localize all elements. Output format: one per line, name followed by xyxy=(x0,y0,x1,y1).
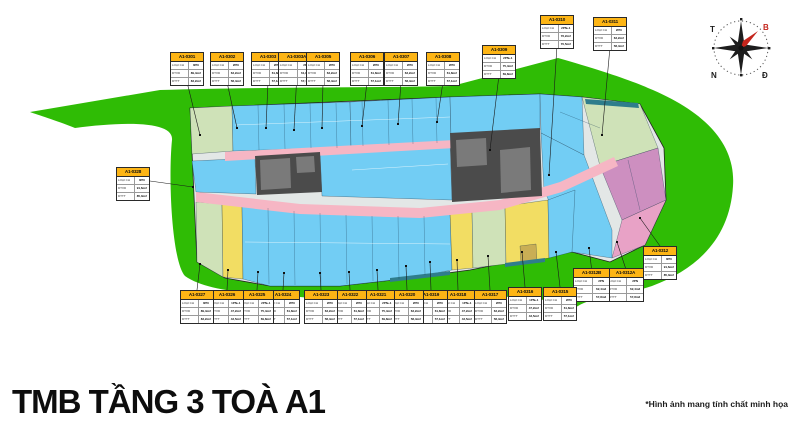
callout-endpoint xyxy=(487,255,489,257)
unit-block xyxy=(192,158,256,194)
callout-endpoint xyxy=(456,259,458,261)
unit-block xyxy=(548,190,575,258)
callout-endpoint xyxy=(192,186,194,188)
disclaimer-note: *Hình ảnh mang tính chất minh họa xyxy=(645,399,788,409)
unit-block xyxy=(472,206,506,268)
callout-endpoint xyxy=(199,263,201,265)
unit-block xyxy=(222,204,243,279)
site-plan xyxy=(0,0,800,422)
callout-endpoint xyxy=(639,217,641,219)
callout-endpoint xyxy=(199,134,201,136)
page-title: TMB TẦNG 3 TOÀ A1 xyxy=(12,383,325,421)
compass-west-label: T xyxy=(710,25,715,34)
building xyxy=(190,94,666,286)
callout-endpoint xyxy=(361,125,363,127)
callout-endpoint xyxy=(489,149,491,151)
core-room xyxy=(456,138,487,167)
callout-endpoint xyxy=(555,251,557,253)
unit-block xyxy=(350,97,451,147)
core-room xyxy=(296,156,315,173)
callout-endpoint xyxy=(257,271,259,273)
callout-endpoint xyxy=(405,265,407,267)
compass-north-label: B xyxy=(763,23,769,32)
compass-east-label: Đ xyxy=(762,71,768,80)
callout-endpoint xyxy=(236,127,238,129)
core-room xyxy=(500,147,531,193)
unit-block xyxy=(232,102,351,151)
callout-endpoint xyxy=(321,127,323,129)
callout-endpoint xyxy=(319,272,321,274)
callout-endpoint xyxy=(588,247,590,249)
callout-endpoint xyxy=(436,121,438,123)
callout-endpoint xyxy=(397,123,399,125)
core-room xyxy=(260,158,291,190)
compass: T B N Đ xyxy=(697,5,787,91)
floor-plan-page: { "title": "TMB TẦNG 3 TOÀ A1", "footnot… xyxy=(0,0,800,422)
callout-endpoint xyxy=(265,127,267,129)
compass-south-label: N xyxy=(711,71,717,80)
callout-endpoint xyxy=(521,251,523,253)
callout-endpoint xyxy=(293,129,295,131)
callout-endpoint xyxy=(601,134,603,136)
callout-endpoint xyxy=(283,272,285,274)
unit-block xyxy=(190,106,233,154)
callout-endpoint xyxy=(548,174,550,176)
callout-endpoint xyxy=(348,271,350,273)
callout-endpoint xyxy=(376,269,378,271)
callout-endpoint xyxy=(429,261,431,263)
unit-block xyxy=(450,210,473,270)
callout-endpoint xyxy=(227,269,229,271)
callout-endpoint xyxy=(616,241,618,243)
